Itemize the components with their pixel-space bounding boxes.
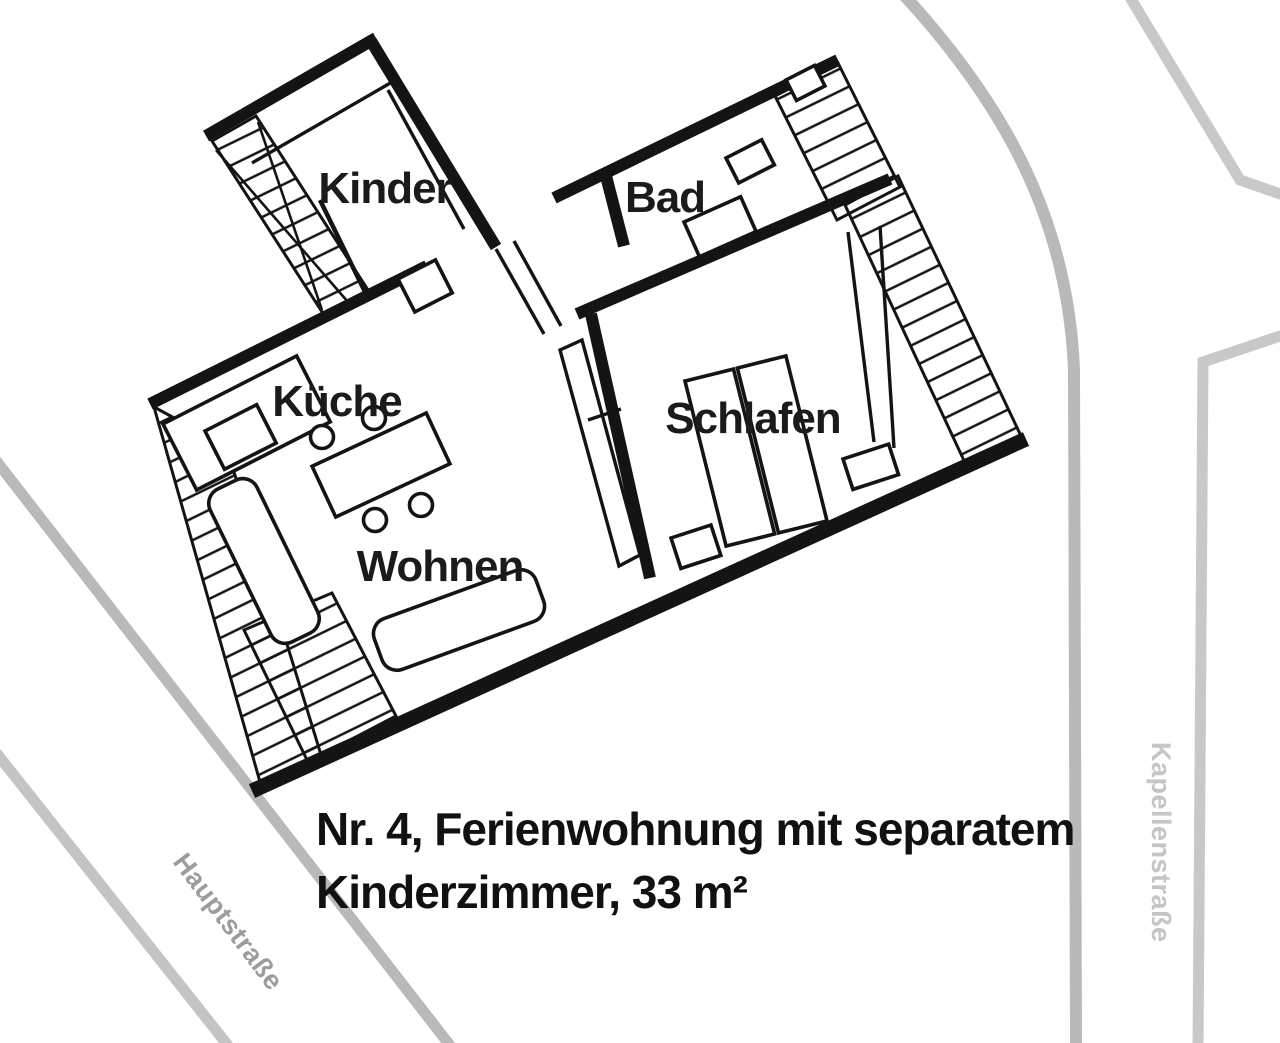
door-swing: [398, 260, 452, 312]
nightstand: [843, 444, 899, 489]
street-corner-north-east: [1128, 0, 1280, 196]
wall-kinder-northwest: [206, 38, 376, 136]
chair: [311, 426, 334, 449]
room-label-kueche: Küche: [272, 377, 401, 426]
floor-plan-canvas: Kinder Bad Küche Schlafen Wohnen Hauptst…: [0, 0, 1280, 1043]
caption-line-2: Kinderzimmer, 33 m²: [316, 866, 748, 918]
chair: [364, 509, 387, 532]
room-label-wohnen: Wohnen: [357, 542, 524, 591]
toilet: [726, 140, 774, 183]
room-label-schlafen: Schlafen: [665, 394, 840, 443]
nightstand: [671, 525, 721, 568]
chair: [410, 494, 433, 517]
wall-corridor-east: [514, 241, 561, 326]
street-label-kapellenstrasse: Kapellenstraße: [1146, 742, 1176, 943]
wall-corridor-west: [496, 249, 544, 334]
double-bed: [685, 356, 827, 546]
street-label-hauptstrasse: Hauptstraße: [167, 848, 289, 996]
room-label-bad: Bad: [625, 173, 705, 222]
caption: Nr. 4, Ferienwohnung mit separatem Kinde…: [316, 803, 1074, 918]
street-kapellenstrasse-east: [1198, 334, 1280, 1043]
wall-bad-west-stub: [606, 176, 624, 246]
wall-schlafen-east-inner: [848, 232, 874, 442]
wall-kinder-northeast: [371, 41, 496, 247]
wall-wohnen-schlafen-divider: [591, 314, 650, 578]
street-curve-kapellenstrasse-west: [903, 0, 1076, 1043]
room-label-kinder: Kinder: [318, 164, 452, 213]
caption-line-1: Nr. 4, Ferienwohnung mit separatem: [316, 803, 1074, 855]
